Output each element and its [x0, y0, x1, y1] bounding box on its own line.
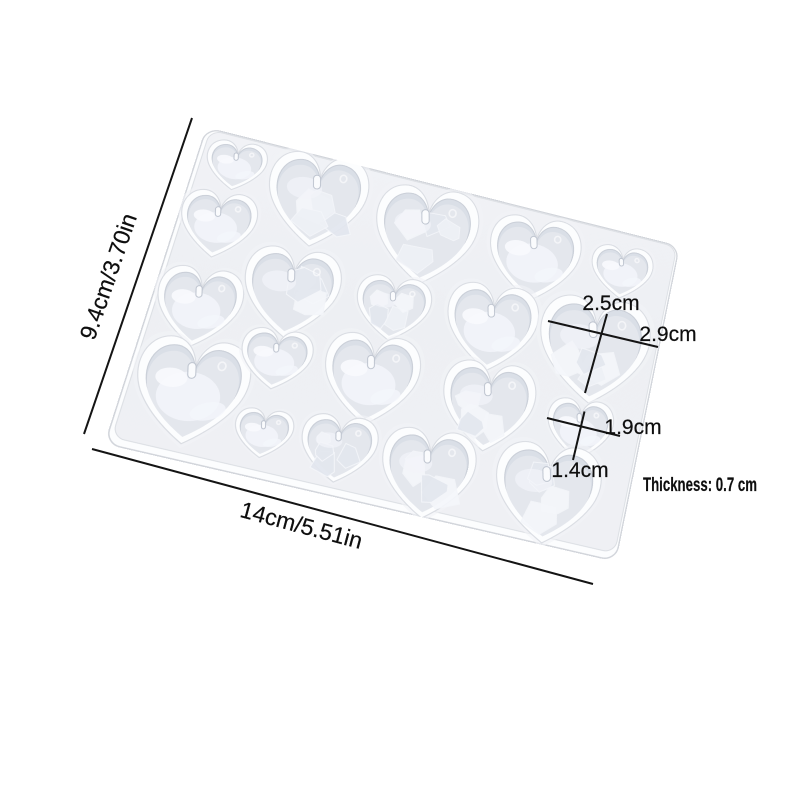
- svg-text:9.4cm/3.70in: 9.4cm/3.70in: [74, 210, 141, 343]
- svg-text:1.4cm: 1.4cm: [551, 459, 608, 482]
- svg-text:1.9cm: 1.9cm: [604, 416, 661, 439]
- svg-text:2.5cm: 2.5cm: [582, 292, 639, 315]
- svg-text:Thickness: 0.7 cm: Thickness: 0.7 cm: [643, 475, 757, 496]
- svg-text:2.9cm: 2.9cm: [639, 323, 696, 346]
